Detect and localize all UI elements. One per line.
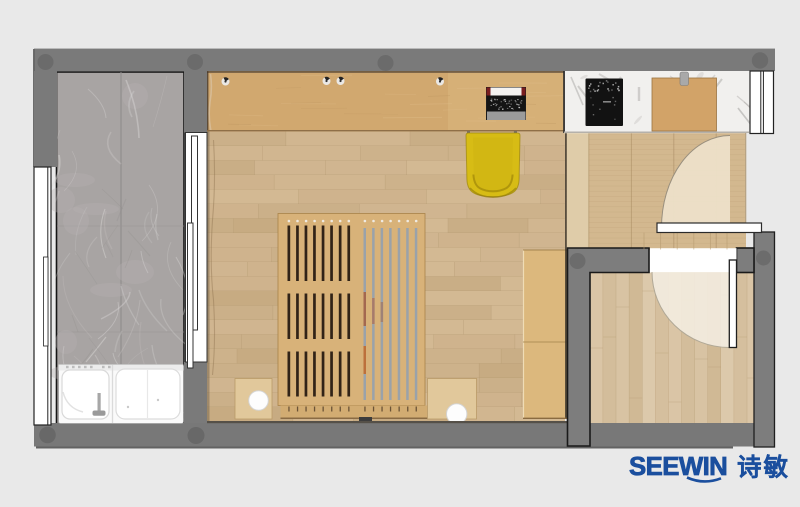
svg-text:SEEWIN: SEEWIN (629, 453, 727, 481)
svg-text:诗敏: 诗敏 (737, 454, 790, 482)
